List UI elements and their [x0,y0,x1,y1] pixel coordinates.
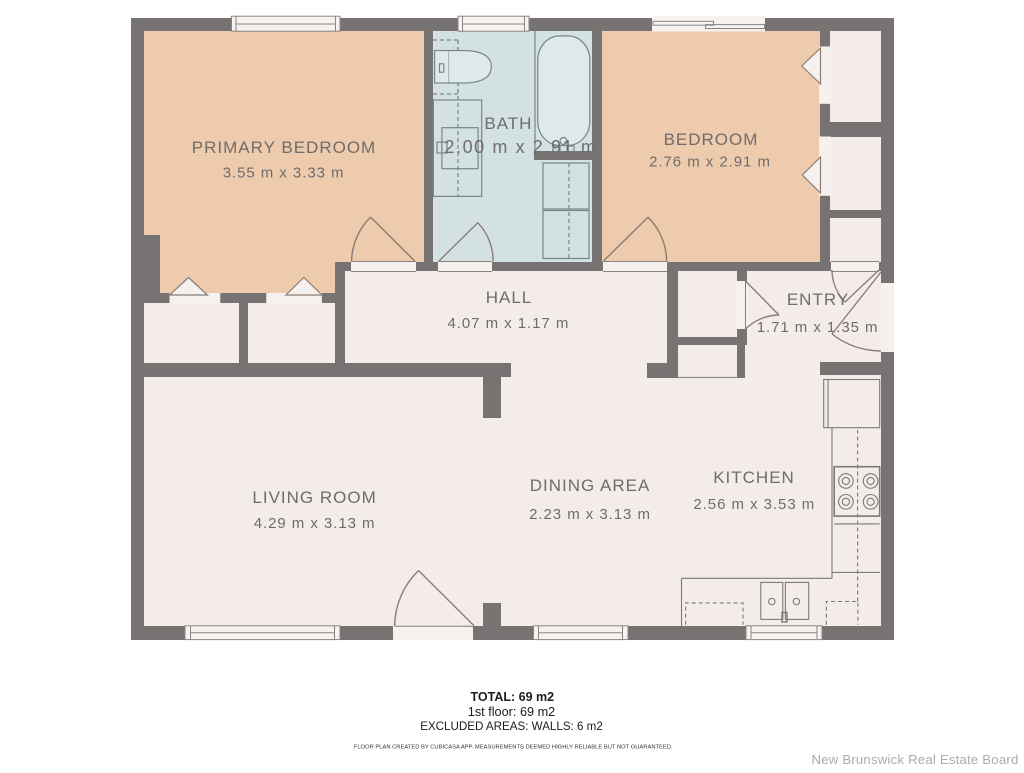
svg-text:2.00 m x 2.91 m: 2.00 m x 2.91 m [444,137,597,157]
svg-text:3.55 m x 3.33 m: 3.55 m x 3.33 m [223,165,345,182]
svg-text:2.56 m x 3.53 m: 2.56 m x 3.53 m [693,496,815,513]
svg-text:PRIMARY BEDROOM: PRIMARY BEDROOM [192,138,376,157]
svg-text:4.29 m x 3.13 m: 4.29 m x 3.13 m [254,515,376,532]
svg-text:FLOOR PLAN CREATED BY CUBICASA: FLOOR PLAN CREATED BY CUBICASA APP. MEAS… [354,745,673,751]
svg-text:BEDROOM: BEDROOM [664,130,759,149]
svg-text:EXCLUDED AREAS: WALLS: 6 m2: EXCLUDED AREAS: WALLS: 6 m2 [420,720,603,733]
svg-text:ENTRY: ENTRY [787,290,849,309]
svg-text:4.07 m x 1.17 m: 4.07 m x 1.17 m [447,315,569,332]
svg-text:TOTAL: 69 m2: TOTAL: 69 m2 [471,690,555,704]
svg-text:KITCHEN: KITCHEN [713,468,795,487]
svg-text:DINING AREA: DINING AREA [530,476,651,495]
svg-text:2.23 m x 3.13 m: 2.23 m x 3.13 m [529,506,651,523]
svg-text:2.76 m x 2.91 m: 2.76 m x 2.91 m [649,154,771,171]
svg-text:HALL: HALL [486,288,533,307]
svg-text:1.71 m x 1.35 m: 1.71 m x 1.35 m [757,319,879,336]
svg-text:BATH: BATH [484,114,532,133]
svg-text:1st floor: 69 m2: 1st floor: 69 m2 [468,705,555,719]
svg-text:New Brunswick Real Estate Boar: New Brunswick Real Estate Board [811,752,1018,767]
svg-text:LIVING ROOM: LIVING ROOM [252,488,376,507]
